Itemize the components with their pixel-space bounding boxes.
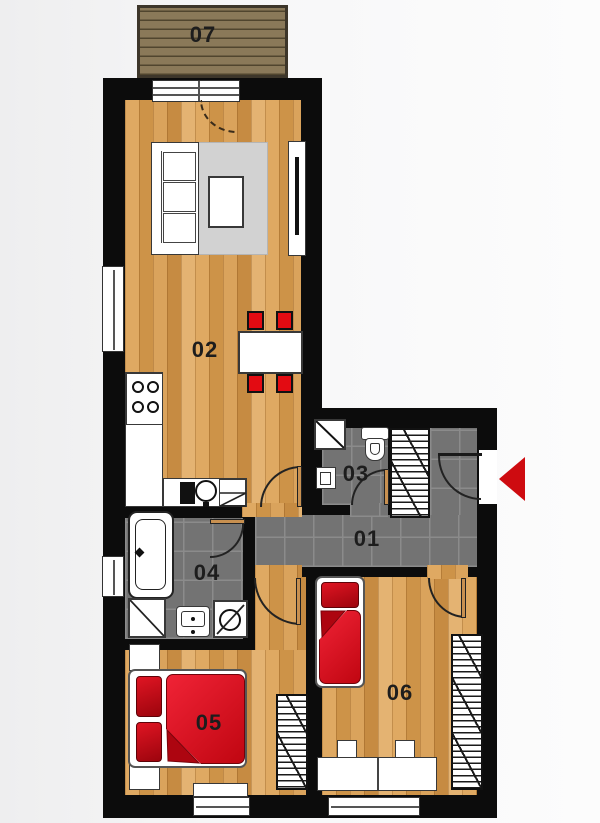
room-label-05: 05 — [186, 710, 232, 736]
balcony-window-band — [152, 80, 240, 102]
bedroom05-window-mullion — [196, 806, 249, 808]
bathroom-door-leaf — [210, 519, 245, 524]
bedroom06-window-mullion — [331, 806, 419, 808]
bathtub — [128, 511, 174, 599]
toilet-sink-basin — [320, 472, 331, 485]
room-label-04: 04 — [184, 560, 230, 586]
entry-door-opening — [479, 450, 497, 504]
room-label-01: 01 — [344, 526, 390, 552]
kitchen-trash-unit — [180, 482, 195, 504]
desk-divider — [377, 758, 379, 790]
dining-chair — [276, 311, 293, 330]
desk-chair — [337, 740, 357, 758]
stove-burner — [132, 381, 144, 393]
entrance-arrow-icon — [499, 457, 525, 501]
living-left-window-mullion — [113, 270, 115, 350]
bathroom-left-window — [102, 556, 124, 597]
toilet-door-leaf — [384, 469, 389, 505]
bathroom-sink — [176, 606, 210, 637]
shower-diagonal — [130, 600, 164, 636]
bedroom06-door-threshold — [427, 565, 468, 579]
desk-chair — [395, 740, 415, 758]
bedroom05-sill-desk — [193, 783, 248, 797]
bedroom06-wardrobe — [451, 634, 483, 790]
bedroom05-bottom-window — [193, 797, 250, 816]
balcony-window-divider — [198, 81, 200, 101]
floor-plan-canvas: 07 02 — [0, 0, 600, 823]
toilet-door-threshold — [350, 503, 388, 517]
room-label-06: 06 — [377, 680, 423, 706]
sofa-backrest — [152, 151, 162, 243]
bathroom-sink-drain-dot — [191, 617, 195, 621]
toilet-bowl — [365, 438, 385, 461]
sofa-cushion — [163, 152, 196, 181]
stove-burner — [147, 381, 159, 393]
stove — [126, 373, 163, 425]
desk — [317, 757, 437, 791]
dining-chair — [276, 374, 293, 393]
kitchen-sink-tap — [203, 502, 209, 507]
dishwasher-hatch — [220, 480, 247, 507]
shaft-diagonal — [316, 421, 344, 448]
dining-chair — [247, 311, 264, 330]
shaft-symbol — [314, 419, 346, 450]
toilet-bowl-inner — [370, 443, 380, 455]
coffee-table — [208, 176, 244, 228]
bathroom-left-window-mullion — [113, 560, 115, 595]
bed-single-pillow — [321, 582, 359, 608]
shower-corner-unit — [128, 598, 166, 638]
washing-machine-diagonal — [215, 602, 246, 636]
nightstand — [129, 644, 160, 671]
room-label-07: 07 — [180, 22, 226, 48]
living-left-window — [102, 266, 124, 352]
dining-chair — [247, 374, 264, 393]
bed-pillow — [136, 722, 162, 762]
entry-door-leaf — [438, 453, 482, 456]
sofa — [151, 142, 199, 255]
bedroom05-door-leaf — [296, 578, 301, 625]
sofa-cushion — [163, 213, 196, 243]
room-label-02: 02 — [182, 337, 228, 363]
sofa-cushion — [163, 182, 196, 212]
washing-machine — [213, 600, 248, 638]
bedroom05-door-threshold — [255, 565, 302, 579]
entry-closet — [390, 428, 430, 518]
kitchen-sink — [195, 480, 217, 502]
blanket-fold — [318, 609, 348, 641]
stove-burner — [147, 401, 159, 413]
bedroom05-wardrobe — [276, 694, 308, 790]
balcony-window-mullion-1 — [153, 87, 239, 89]
bathroom-sink-tap-dot — [191, 630, 195, 634]
bedroom06-bottom-window — [328, 797, 420, 816]
dishwasher — [219, 479, 246, 506]
dining-table — [238, 331, 303, 374]
tv-icon — [295, 157, 299, 235]
stove-burner — [132, 401, 144, 413]
living-door-leaf — [297, 466, 302, 507]
bedroom06-door-leaf — [461, 578, 466, 618]
tv-cabinet — [288, 141, 306, 256]
balcony-window-mullion-2 — [153, 94, 239, 96]
room-label-03: 03 — [333, 461, 379, 487]
bed-pillow — [136, 676, 162, 717]
